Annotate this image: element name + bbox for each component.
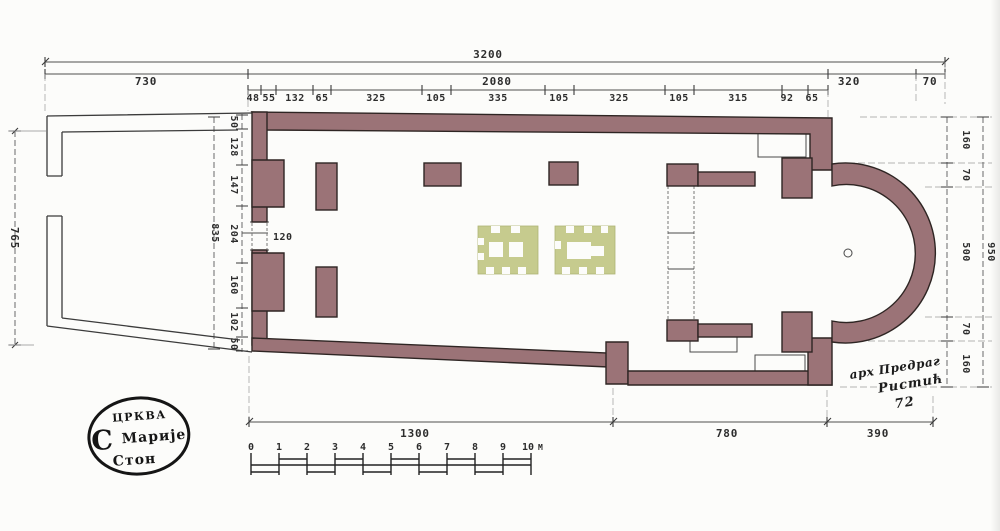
dim-left-50a: 50 [228,115,239,128]
dim-top-105a: 105 [426,93,446,104]
scale-0: 0 [248,442,254,453]
west-pilaster-lower [252,253,284,311]
dim-top-2080: 2080 [482,75,512,88]
nave-pilaster-n1 [424,163,461,186]
dim-top-320: 320 [838,75,860,88]
south-wall-jog [606,342,628,384]
nave-pilaster-nw [316,163,337,210]
top-dimension-lines: 3200 730 2080 320 70 48 55 132 65 325 10… [42,48,949,121]
architect-signature: арх Предраг Ристић 72 [849,354,948,419]
altar-point [844,249,852,257]
scale-bar: 0 1 2 3 4 5 6 7 8 9 10 M [248,442,543,475]
scale-2: 2 [304,442,310,453]
dim-top-70: 70 [923,75,938,88]
dim-left-overall: 835 [209,223,220,243]
scale-7: 7 [444,442,450,453]
dim-top-315: 315 [728,93,748,104]
iconostasis-bar-north [698,172,755,186]
dim-top-48: 48 [246,93,259,104]
dim-top-65a: 65 [315,93,328,104]
dim-left-outer: 765 [8,227,21,249]
west-door-opening [252,223,267,249]
dim-top-105b: 105 [549,93,569,104]
stamp-line3: Стон [112,451,156,470]
scale-1: 1 [276,442,282,453]
atrium-outline [47,113,252,352]
dim-left-160: 160 [228,275,239,295]
dim-right-160b: 160 [960,354,971,374]
dim-left-128: 128 [228,137,239,157]
dim-right-70a: 70 [960,168,971,181]
stamp-line1: ЦРКВА [112,408,167,425]
south-wall-west [252,338,608,367]
stamp-initial: С [90,425,114,457]
floor-plan-drawing: 3200 730 2080 320 70 48 55 132 65 325 10… [0,0,1000,531]
south-sanctuary-door [755,355,805,372]
dim-bottom-1300: 1300 [400,427,430,440]
scale-8: 8 [472,442,478,453]
scale-9: 9 [500,442,506,453]
choir-feature-left [478,226,538,274]
dim-right-160a: 160 [960,130,971,150]
scale-4: 4 [360,442,366,453]
south-wall-east [628,371,832,385]
dim-left-204: 204 [228,224,239,244]
iconostasis-bar-south [698,324,752,337]
north-wall [252,112,832,170]
dim-left-102: 102 [228,312,239,332]
west-door-jambs [250,222,269,250]
scan-edge-shadow [990,0,1000,531]
iconostasis-pier-north [667,164,698,186]
scale-6: 6 [416,442,422,453]
iconostasis-screen-lines [668,186,694,324]
nave-pilaster-sw [316,267,337,317]
dim-top-105c: 105 [669,93,689,104]
scale-unit: M [538,443,543,452]
bottom-dimension-lines: 1300 780 390 [246,356,937,440]
apse-pier-south [782,312,812,352]
dim-top-325b: 325 [609,93,629,104]
iconostasis-door-marks [668,233,694,269]
dim-top-335: 335 [488,93,508,104]
stamp: ЦРКВА С Марије Стон [86,395,191,478]
iconostasis-pier-south [667,320,698,341]
dim-top-325a: 325 [366,93,386,104]
dim-right-500: 500 [960,242,971,262]
apse-wall [832,163,935,343]
dim-right-70b: 70 [960,322,971,335]
dim-left-147: 147 [228,175,239,195]
left-dimension-lines: 765 835 50 128 147 204 160 102 50 120 [8,114,293,352]
dim-west-door: 120 [273,232,293,243]
scale-3: 3 [332,442,338,453]
west-pilaster-upper [252,160,284,207]
nave-pilaster-n2 [549,162,578,185]
dim-top-overall: 3200 [473,48,503,61]
dim-bottom-780: 780 [716,427,738,440]
stamp-line2: Марије [121,427,187,447]
dim-top-92: 92 [780,93,793,104]
choir-feature-right [555,226,615,274]
dim-top-65b: 65 [805,93,818,104]
dim-top-55: 55 [262,93,275,104]
dim-bottom-390: 390 [867,427,889,440]
signature-line3: 72 [894,394,916,412]
scale-5: 5 [388,442,394,453]
dim-top-132: 132 [285,93,305,104]
apse-pier-north [782,158,812,198]
north-sanctuary-door [758,133,806,157]
scale-10: 10 [522,442,534,453]
dim-top-730: 730 [135,75,157,88]
floor-plan-canvas: 3200 730 2080 320 70 48 55 132 65 325 10… [0,0,1000,531]
